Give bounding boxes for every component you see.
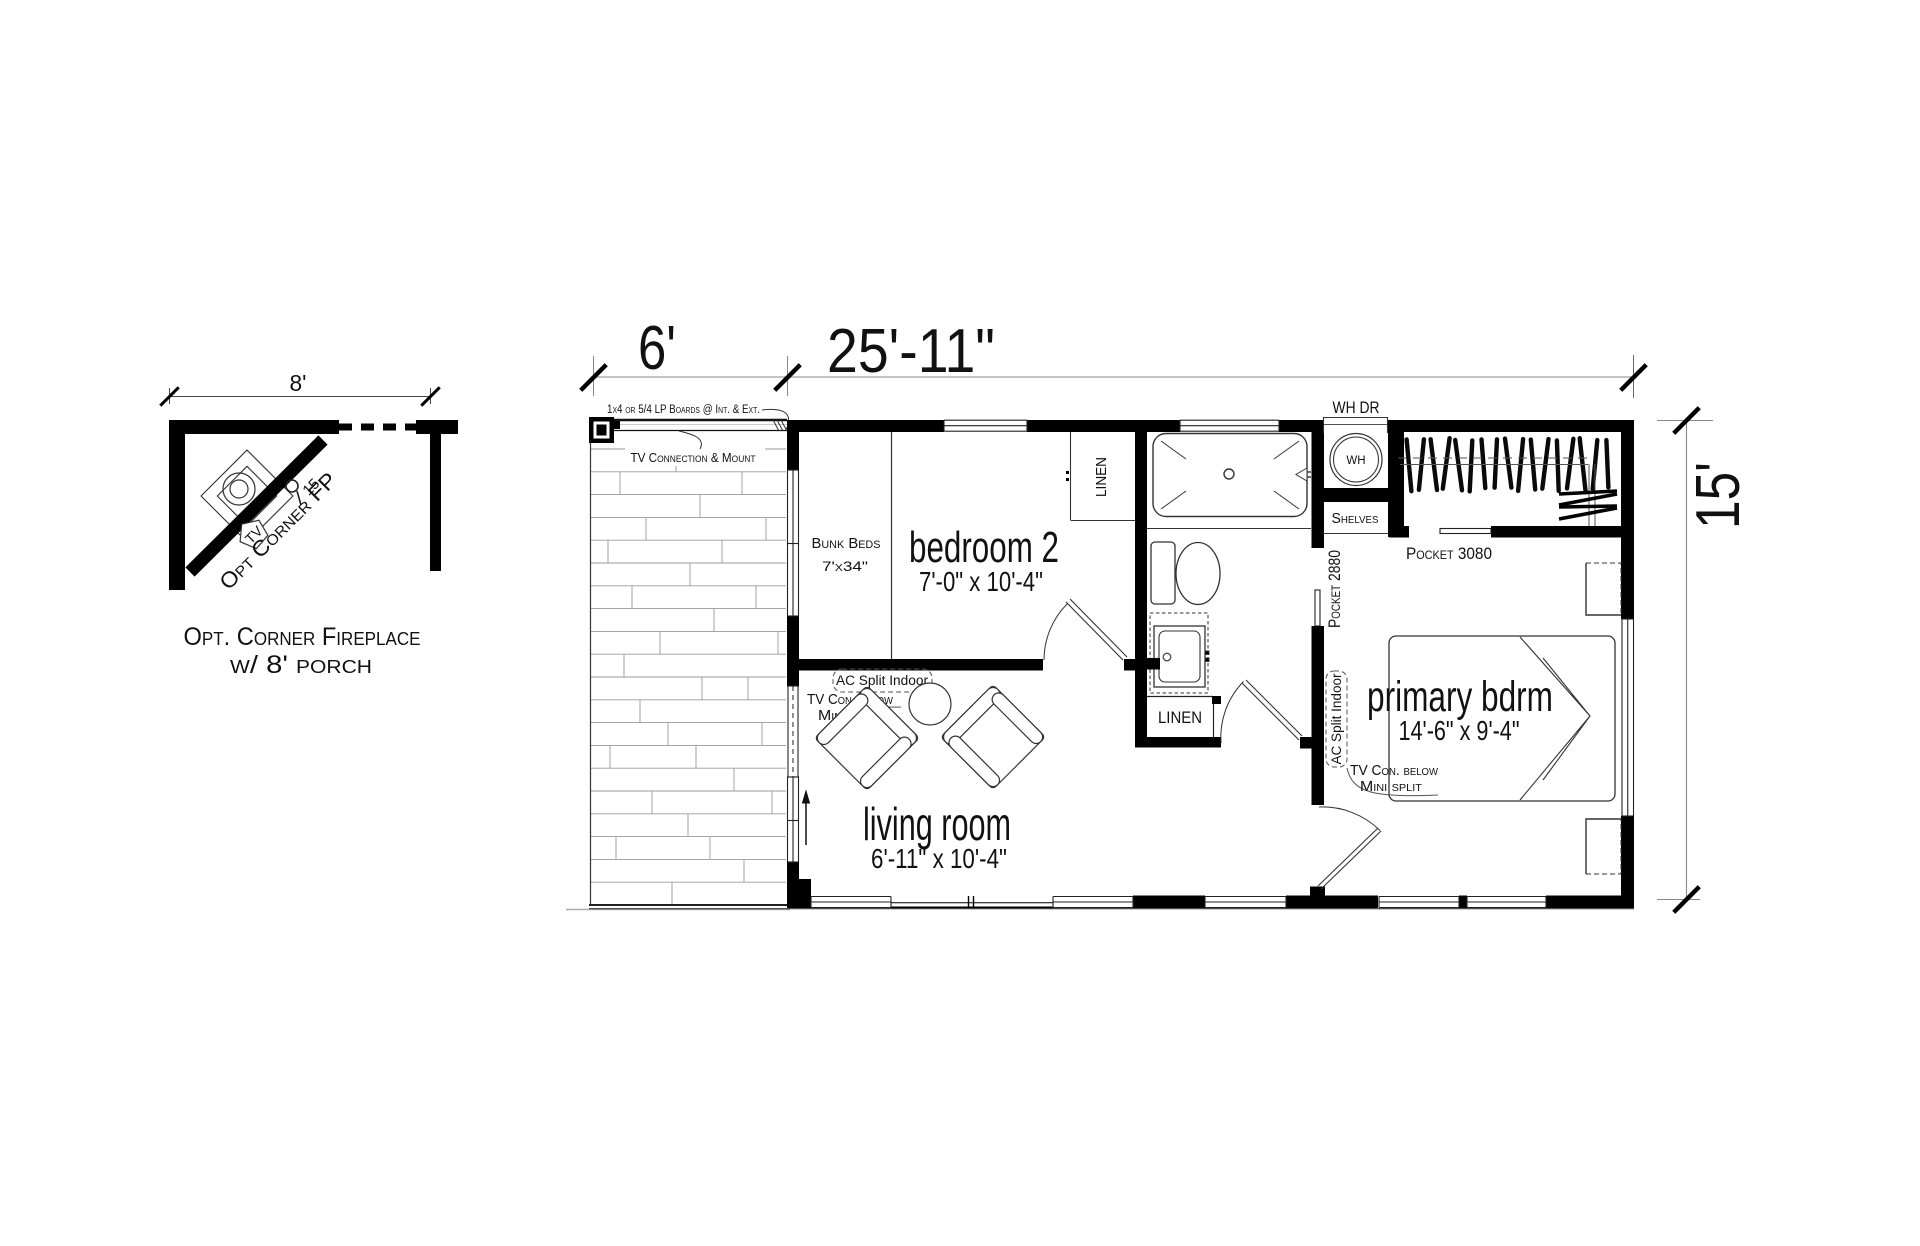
svg-text:7'-0" x 10'-4": 7'-0" x 10'-4": [919, 566, 1043, 597]
svg-text:AC Split Indoor: AC Split Indoor: [836, 673, 929, 688]
svg-text:AC Split Indoor: AC Split Indoor: [1329, 673, 1344, 765]
svg-text:TV Con. below: TV Con. below: [1350, 763, 1439, 779]
svg-text:8': 8': [290, 370, 307, 396]
svg-text:w/ 8' porch: w/ 8' porch: [230, 651, 372, 679]
svg-text:7'x34": 7'x34": [822, 558, 868, 574]
svg-text:primary bdrm: primary bdrm: [1367, 673, 1553, 721]
svg-text:14'-6" x 9'-4": 14'-6" x 9'-4": [1399, 715, 1520, 746]
svg-text:Bunk Beds: Bunk Beds: [812, 535, 881, 552]
svg-text:WH: WH: [1346, 455, 1365, 467]
svg-text:LINEN: LINEN: [1158, 709, 1202, 727]
svg-text:6': 6': [638, 314, 676, 383]
svg-text:Pocket 2880: Pocket 2880: [1325, 550, 1344, 628]
svg-text:bedroom 2: bedroom 2: [909, 523, 1059, 572]
svg-text:15': 15': [1684, 462, 1753, 529]
svg-text:Pocket 3080: Pocket 3080: [1406, 544, 1492, 563]
svg-text:25'-11": 25'-11": [827, 317, 995, 386]
svg-text:6'-11" x 10'-4": 6'-11" x 10'-4": [871, 843, 1007, 874]
svg-text:TV Connection & Mount: TV Connection & Mount: [631, 451, 756, 465]
svg-text:WH DR: WH DR: [1333, 398, 1380, 417]
svg-text:Mini split: Mini split: [1360, 779, 1422, 795]
svg-text:LINEN: LINEN: [1093, 457, 1110, 497]
svg-text:Shelves: Shelves: [1332, 511, 1379, 527]
svg-text:1x4 or 5/4 LP Boards @ Int. &: 1x4 or 5/4 LP Boards @ Int. & Ext.: [607, 404, 760, 416]
svg-text:Opt. Corner Fireplace: Opt. Corner Fireplace: [184, 623, 421, 651]
